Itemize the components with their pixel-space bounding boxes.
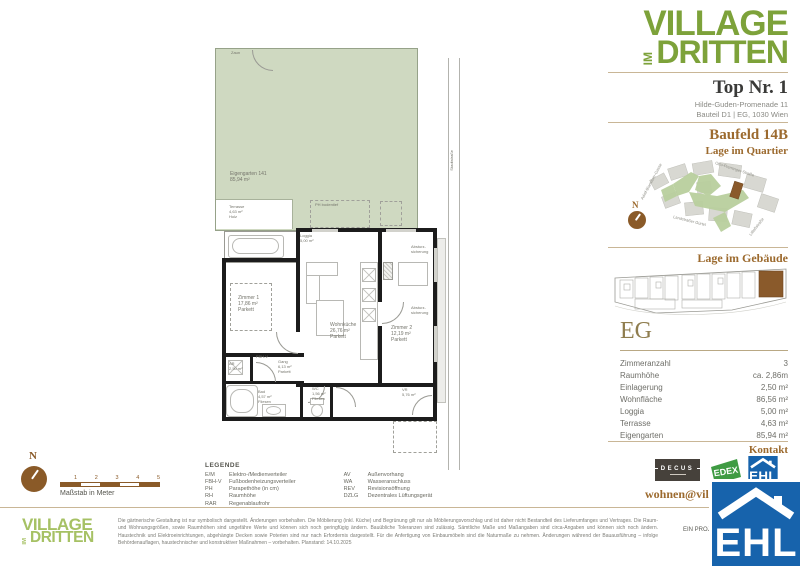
floor-underline	[620, 350, 788, 351]
zaun-label: Zaun	[231, 51, 240, 56]
edex-logo: EDEX	[706, 457, 744, 485]
door-entry	[412, 395, 432, 415]
brand-im: IM	[642, 52, 654, 65]
kitchen-label: Wohnküche26,76 m²Parkett	[330, 322, 356, 340]
fact-row: Zimmeranzahl3	[620, 357, 788, 369]
washbasin-bowl	[266, 406, 281, 415]
kontakt-heading: Kontakt	[608, 444, 788, 456]
disclaimer-text: Die gärtnerische Gestaltung ist nur symb…	[118, 518, 658, 547]
window-top-2	[386, 229, 416, 232]
divider	[608, 441, 788, 442]
wall-room1-kitchen	[296, 232, 300, 332]
terrace-area	[216, 199, 293, 229]
sofa-2	[306, 262, 338, 276]
fact-row: Eigengarten85,94 m²	[620, 429, 788, 441]
wall-ar-right	[250, 357, 253, 383]
loggia-planter-inner	[232, 238, 279, 254]
door-vr	[336, 387, 356, 407]
compass-n-right: N	[632, 200, 639, 210]
absturz-label-2: Absturz-sicherung	[411, 306, 428, 316]
ehl-logo-small: EHL	[748, 456, 778, 484]
wall-loggia-bottom	[222, 258, 300, 262]
window-right-1	[434, 248, 437, 282]
fact-row: Loggia5,00 m²	[620, 405, 788, 417]
appliance-3	[362, 308, 376, 322]
fact-row: Raumhöheca. 2,86m	[620, 369, 788, 381]
fact-row: Terrasse4,63 m²	[620, 417, 788, 429]
divider	[608, 72, 788, 73]
door-bad	[256, 362, 276, 382]
decus-wordmark: DECUS	[661, 466, 695, 472]
legend-title: LEGENDE	[205, 462, 432, 469]
window-top-1	[312, 229, 338, 232]
scale-caption: Maßstab in Meter	[60, 490, 160, 497]
window-right-2	[434, 326, 437, 362]
floor-heading: EG	[620, 318, 652, 345]
decus-logo: DECUS	[655, 459, 700, 481]
garden-label: Eigengarten 14185,94 m²	[230, 171, 267, 183]
toilet-bowl	[311, 404, 323, 417]
baufeld-heading: Baufeld 14B	[608, 127, 788, 144]
scale-bar-segments	[60, 482, 160, 487]
compass-n-left: N	[29, 450, 37, 462]
fact-row: Wohnfläche86,56 m²	[620, 393, 788, 405]
vr-label: VR5,76 m²	[402, 388, 416, 398]
ehl-logo-overlay: EHL	[712, 482, 800, 566]
room2-label: Zimmer 212,19 m²Parkett	[391, 325, 412, 343]
legend: LEGENDE E/MElektro-/Medienverteiler FBH-…	[205, 462, 432, 508]
brand-line2: DRITTEN	[656, 39, 788, 65]
ehl-wordmark-overlay: EHL	[715, 521, 798, 565]
fact-row: Einlagerung2,50 m²	[620, 381, 788, 393]
door-room1	[276, 332, 298, 354]
door-room2	[382, 302, 404, 324]
boundary-line	[448, 58, 449, 470]
building-highlight-unit	[759, 271, 783, 297]
gang-label: Gang6,13 m²Parkett	[278, 360, 292, 374]
fbhv-label: FBH-V	[256, 355, 268, 360]
compass-icon-right	[628, 211, 646, 229]
address-line-1: Hilde-Guden-Promenade 11	[608, 100, 788, 109]
desk-room2	[398, 262, 428, 286]
bathtub-inner	[230, 389, 254, 413]
quartier-map: Adolf-Blamauer-Gasse Otto-Preminger-Stra…	[633, 156, 790, 241]
legend-col-2: AVAußenvorhang WAWasseranschluss REVRevi…	[344, 472, 433, 508]
wall-wc-left	[300, 383, 303, 421]
brand-line2: DRITTEN	[30, 532, 94, 545]
ph-label: PH bodentief	[315, 203, 338, 208]
facts-table: Zimmeranzahl3 Raumhöheca. 2,86m Einlager…	[620, 357, 788, 441]
scale-bar: 12 34 5 Maßstab in Meter	[60, 475, 160, 497]
wall-kitchen-room2-upper	[378, 232, 382, 302]
projection-dashed-2	[380, 201, 402, 226]
shaft-hatch	[383, 262, 393, 280]
appliance-2	[362, 288, 376, 302]
page-title: Top Nr. 1	[608, 77, 788, 99]
terrace-label: Terrasse4,63 m²Holz	[229, 205, 244, 219]
divider	[608, 122, 788, 123]
room1-label: Zimmer 117,86 m²Parkett	[238, 295, 259, 313]
bad-label: Bad4,57 m²Fliesen	[258, 390, 272, 404]
brand-logo-top: VILLAGE IM DRITTEN	[608, 10, 788, 65]
wc-label: WC1,56 m²Fliesen	[312, 387, 326, 401]
brand-logo-bottom: VILLAGE IM DRITTEN	[22, 518, 94, 545]
legend-col-1: E/MElektro-/Medienverteiler FBH-VFußbode…	[205, 472, 296, 508]
brand-im: IM	[22, 538, 28, 545]
facade-strip	[437, 238, 446, 403]
compass-icon-left	[21, 466, 47, 492]
street-middle: Landstraßer Gürtel	[673, 214, 707, 227]
divider	[608, 247, 788, 248]
boundary-line-2	[459, 58, 460, 470]
scale-ticks: 12 34 5	[60, 475, 160, 481]
address-line-2: Bauteil D1 | EG, 1030 Wien	[608, 110, 788, 119]
loggia-label: Loggia5,00 m²	[300, 234, 314, 244]
floorplan-document-page: Stadtstraße	[0, 0, 800, 566]
entry-vestibule-dashed	[393, 421, 437, 453]
ar-label: AR2,50 m²	[229, 362, 243, 372]
wall-kitchen-room2-lower	[378, 326, 382, 386]
gebaeude-heading: Lage im Gebäude	[608, 251, 788, 266]
appliance-1	[362, 268, 376, 282]
floor-plan: Stadtstraße	[0, 0, 600, 505]
absturz-label-1: Absturz-sicherung	[411, 245, 428, 255]
wall-wc-right	[330, 383, 333, 421]
street-label: Stadtstraße	[450, 150, 455, 171]
